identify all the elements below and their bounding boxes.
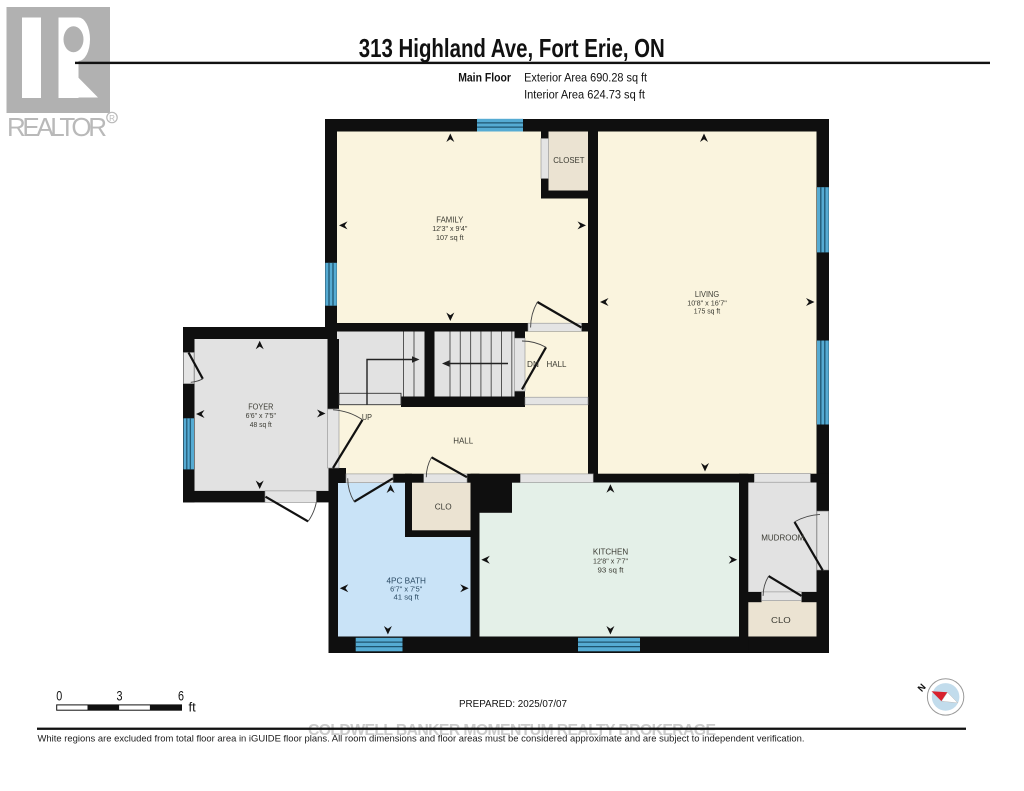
svg-text:Interior Area 624.73 sq ft: Interior Area 624.73 sq ft	[524, 88, 645, 102]
svg-text:107 sq ft: 107 sq ft	[436, 233, 464, 242]
svg-text:Main Floor: Main Floor	[458, 70, 511, 84]
svg-text:0: 0	[56, 688, 62, 704]
svg-text:CLOSET: CLOSET	[553, 156, 584, 165]
svg-text:ft: ft	[189, 700, 197, 715]
svg-text:DN: DN	[527, 360, 539, 369]
svg-text:FAMILY: FAMILY	[436, 215, 464, 224]
svg-text:HALL: HALL	[453, 437, 473, 446]
svg-text:CLO: CLO	[771, 616, 791, 625]
svg-text:R: R	[109, 114, 115, 123]
svg-text:LIVING: LIVING	[695, 290, 719, 299]
svg-text:CLO: CLO	[435, 503, 452, 512]
svg-text:White regions are excluded fro: White regions are excluded from total fl…	[38, 734, 805, 744]
svg-text:REALTOR: REALTOR	[7, 112, 107, 142]
svg-text:6: 6	[178, 688, 184, 704]
svg-text:41 sq ft: 41 sq ft	[394, 593, 419, 602]
svg-text:KITCHEN: KITCHEN	[593, 548, 628, 557]
svg-text:3: 3	[117, 688, 123, 704]
svg-text:12'3" x 9'4": 12'3" x 9'4"	[432, 224, 468, 233]
svg-text:Exterior Area 690.28 sq ft: Exterior Area 690.28 sq ft	[524, 70, 648, 84]
svg-text:MUDROOM: MUDROOM	[761, 534, 804, 543]
svg-text:6'6" x 7'5": 6'6" x 7'5"	[246, 411, 277, 420]
svg-text:93 sq ft: 93 sq ft	[598, 566, 624, 575]
svg-text:175 sq ft: 175 sq ft	[694, 307, 720, 316]
svg-text:12'8" x 7'7": 12'8" x 7'7"	[593, 557, 628, 566]
svg-text:48 sq ft: 48 sq ft	[250, 420, 272, 429]
svg-text:PREPARED: 2025/07/07: PREPARED: 2025/07/07	[459, 699, 567, 710]
svg-text:HALL: HALL	[547, 360, 567, 369]
svg-text:UP: UP	[362, 413, 373, 422]
svg-text:313 Highland Ave, Fort Erie, O: 313 Highland Ave, Fort Erie, ON	[359, 33, 665, 63]
svg-text:FOYER: FOYER	[248, 402, 273, 411]
